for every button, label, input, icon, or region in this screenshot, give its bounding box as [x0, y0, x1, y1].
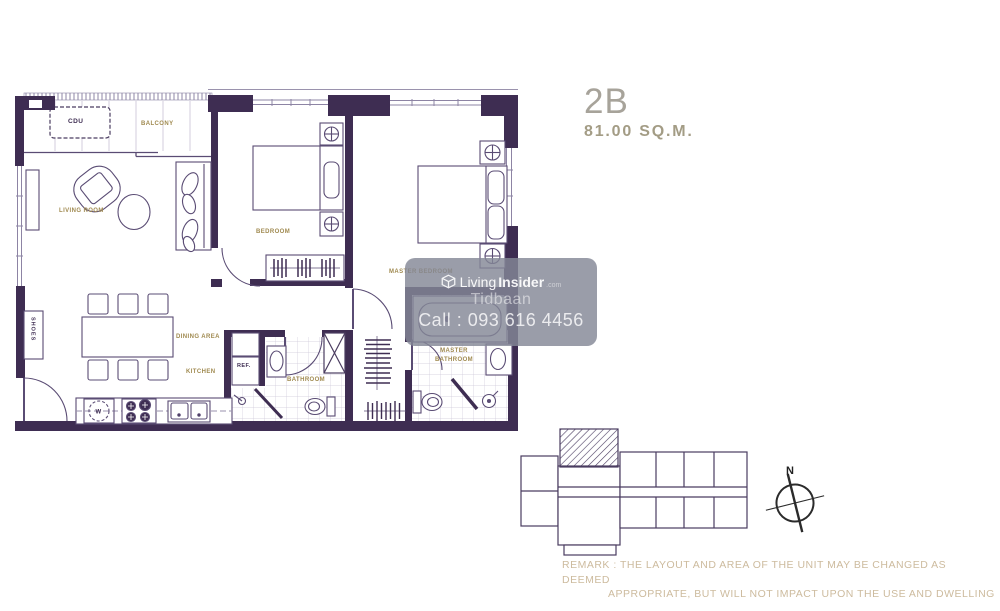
dining-area-label: DINING AREA: [176, 334, 220, 340]
tv-console: [26, 170, 39, 230]
brand-living: Living: [460, 274, 497, 290]
round-table: [118, 195, 150, 230]
master-bathroom-label-line1: MASTER: [424, 347, 484, 356]
kitchen-label: KITCHEN: [186, 369, 215, 375]
refrigerator: [232, 333, 259, 385]
nightstand-lamp: [320, 123, 343, 145]
sliding-door: [24, 153, 212, 157]
cdu-label: CDU: [68, 119, 83, 126]
livinginsider-logo-icon: [441, 274, 456, 289]
dining-set: [82, 294, 173, 380]
unit-title-block: 2B 81.00 SQ.M.: [584, 84, 694, 141]
living-room-label: LIVING ROOM: [59, 208, 104, 214]
refrigerator-label: REF.: [237, 364, 251, 370]
nightstand-lamp: [320, 212, 343, 236]
stove: [122, 399, 156, 423]
kitchen-sink: [168, 401, 210, 422]
bathroom-label: BATHROOM: [287, 377, 325, 383]
master-bathroom-label: MASTER BATHROOM: [424, 347, 484, 365]
sofa: [176, 162, 211, 253]
north-label: N: [786, 465, 794, 477]
remark-line2: APPROPRIATE, BUT WILL NOT IMPACT UPON TH…: [608, 587, 996, 602]
wall-notch: [29, 100, 42, 108]
remark-text: REMARK : THE LAYOUT AND AREA OF THE UNIT…: [562, 558, 996, 602]
living-room-furniture: [26, 160, 211, 254]
key-plan: [521, 429, 747, 555]
unit-area: 81.00 SQ.M.: [584, 123, 694, 141]
pillow: [488, 171, 504, 204]
watermark-brand: LivingInsider.com: [441, 274, 562, 290]
nightstand-lamp: [480, 141, 505, 164]
wardrobe-hangers: [266, 255, 344, 281]
watermark: LivingInsider.com Tidbaan Call : 093 616…: [405, 258, 597, 346]
pillow: [324, 162, 339, 198]
remark-line1: REMARK : THE LAYOUT AND AREA OF THE UNIT…: [562, 558, 996, 587]
master-bathroom-label-line2: BATHROOM: [424, 356, 484, 365]
floorplan-page: W: [0, 0, 1000, 611]
watermark-phone: Call : 093 616 4456: [418, 310, 584, 331]
washer-label: W: [96, 410, 102, 416]
shoes-label: SHOES: [29, 317, 35, 341]
balcony-label: BALCONY: [141, 121, 173, 127]
walkin-closet: [364, 336, 406, 421]
bedroom-furniture: [253, 123, 344, 281]
toilet: [305, 397, 335, 416]
shaft: [324, 333, 345, 373]
bedroom-label: BEDROOM: [256, 229, 290, 235]
north-arrow-icon: N: [759, 465, 832, 539]
master-bedroom-furniture: [418, 141, 507, 268]
pillow: [488, 206, 504, 239]
watermark-agent-name: Tidbaan: [471, 291, 532, 309]
brand-domain: .com: [546, 282, 561, 289]
dining-table: [82, 317, 173, 357]
unit-code: 2B: [584, 84, 694, 119]
brand-insider: Insider: [498, 274, 544, 290]
highlighted-unit: [560, 429, 618, 467]
